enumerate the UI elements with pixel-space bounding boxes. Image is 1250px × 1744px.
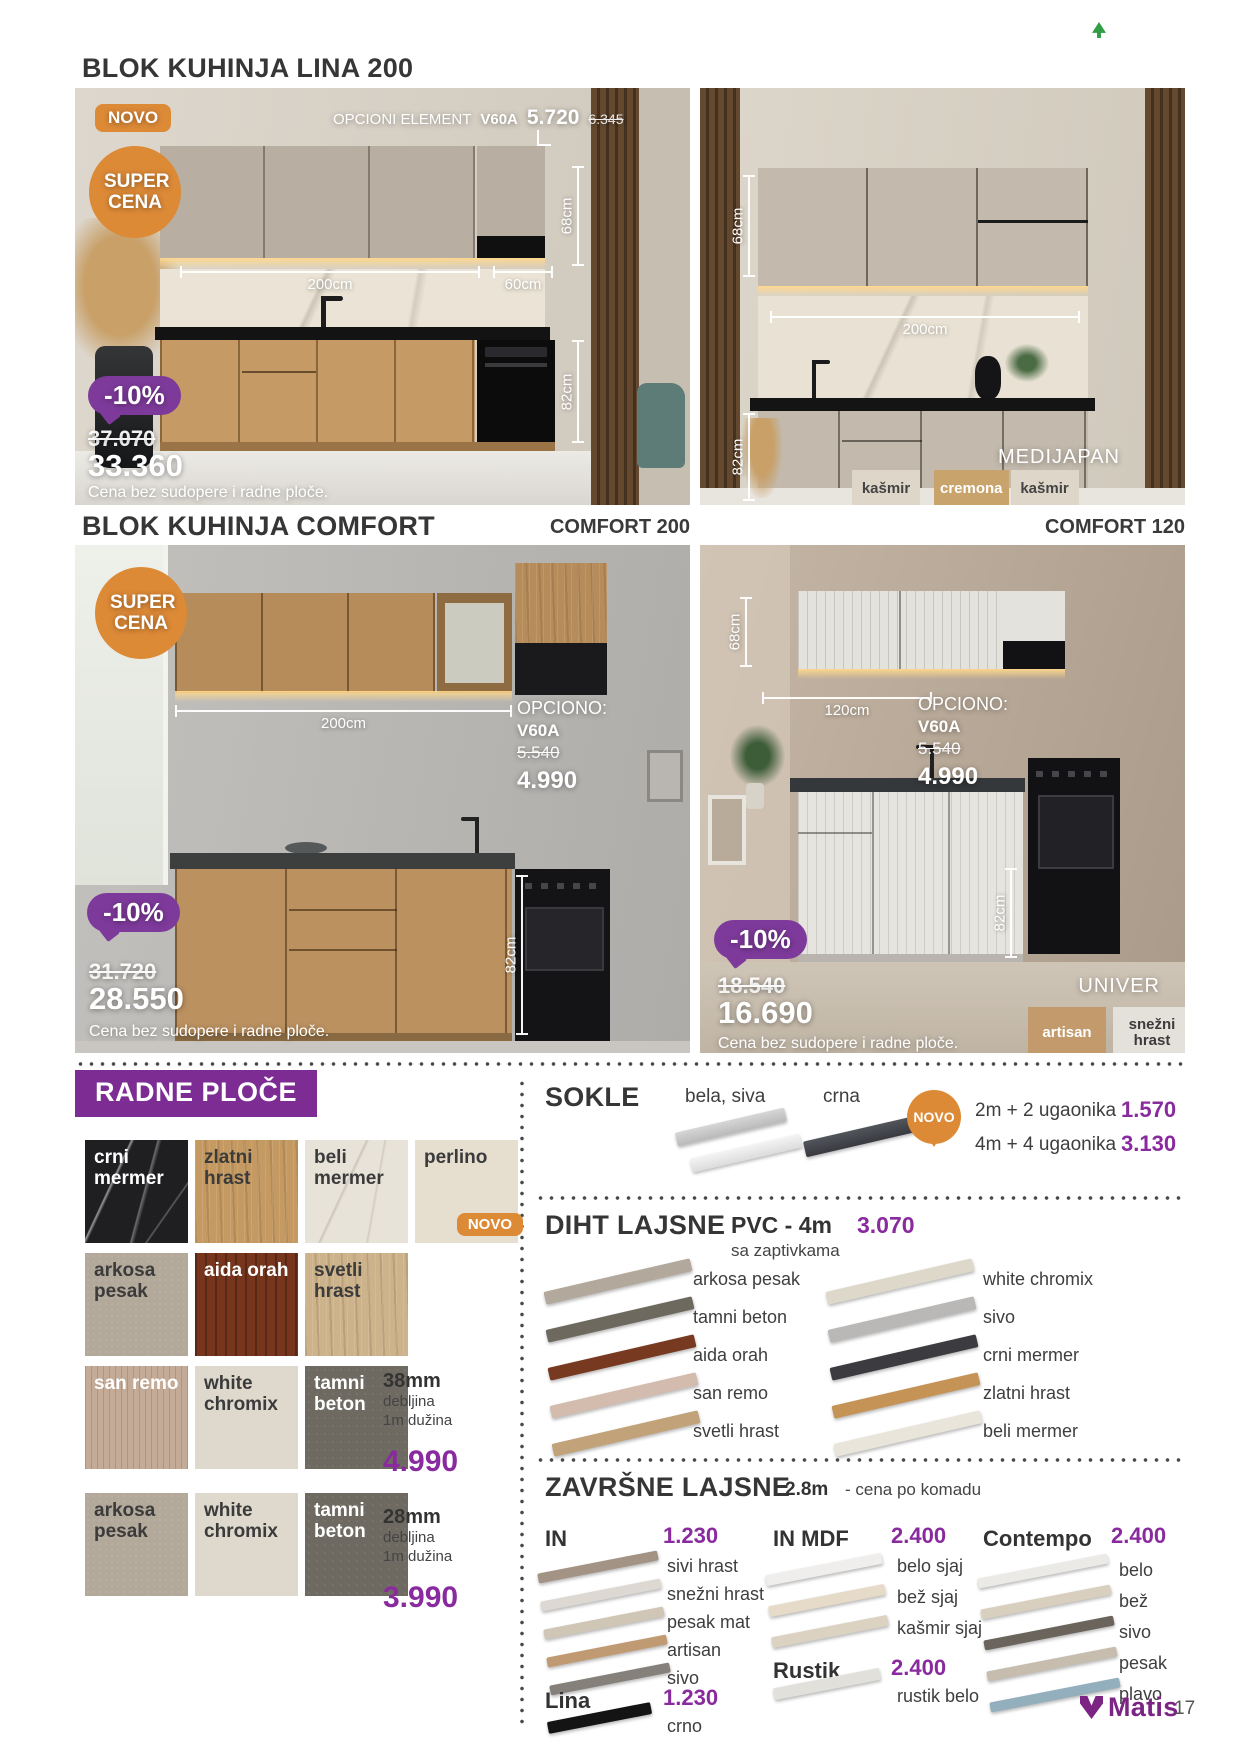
diht-strip — [827, 1296, 976, 1342]
diht-strip — [829, 1334, 978, 1380]
finish-label: sivi hrast — [667, 1556, 738, 1577]
upper-cabinets — [160, 146, 475, 258]
dim-68cm: 68cm — [745, 597, 747, 667]
section-title-lina: BLOK KUHINJA LINA 200 — [82, 53, 413, 84]
finish-group-price: 2.400 — [891, 1655, 946, 1681]
opciono-price: 4.990 — [918, 761, 1008, 792]
thickness-detail: 1m dužina — [383, 1548, 458, 1567]
sokle-variant-dark: crna — [823, 1086, 860, 1108]
kitchen-photo-medijapan: 68cm 200cm 82cm MEDIJAPAN kašmircremonak… — [700, 88, 1185, 505]
faucet-spout — [812, 360, 830, 364]
stove-knobs — [525, 883, 600, 889]
finish-group-price: 2.400 — [1111, 1523, 1166, 1549]
super-cena-badge: SUPER CENA — [89, 146, 181, 238]
finish-strip — [980, 1584, 1111, 1619]
price-note: Cena bez sudopere i radne ploče. — [89, 1023, 329, 1041]
wall-art — [647, 750, 683, 802]
separator — [75, 1062, 1185, 1066]
radne-ploce-section: RADNE PLOČE crni mermerzlatni hrastbeli … — [75, 1070, 520, 1730]
sokle-variant-light: bela, siva — [685, 1086, 765, 1108]
upper-cabinet-right — [477, 146, 545, 236]
finish-group-price: 2.400 — [891, 1523, 946, 1549]
sokle-option-price: 1.570 — [1121, 1097, 1176, 1123]
thickness-28-info: 28mm debljina 1m dužina 3.990 — [383, 1506, 458, 1615]
diht-label: aida orah — [693, 1345, 768, 1366]
catalog-page: BLOK KUHINJA LINA 200 NOVO SUPER CENA OP… — [0, 0, 1250, 1744]
opciono-code: V60A — [918, 716, 1008, 738]
color-swatch: kašmir — [1011, 470, 1079, 505]
swatch-label: san remo — [94, 1374, 178, 1395]
dim-68cm: 68cm — [577, 166, 579, 266]
dim-68cm: 68cm — [748, 175, 750, 277]
thickness-price: 4.990 — [383, 1445, 458, 1479]
swatch-label: beli mermer — [314, 1148, 408, 1189]
plant — [730, 725, 785, 787]
finish-label: bež — [1119, 1591, 1148, 1612]
material-swatch: san remo — [85, 1366, 188, 1469]
diht-label: arkosa pesak — [693, 1269, 800, 1290]
drawer-line — [798, 832, 872, 834]
floor — [75, 1041, 690, 1053]
slat-panel-right — [1145, 88, 1185, 505]
finish-strip — [771, 1615, 889, 1648]
opciono-price: 4.990 — [517, 765, 607, 796]
diht-strip — [551, 1410, 700, 1456]
diht-strip — [825, 1258, 974, 1304]
drawer-line — [242, 371, 316, 373]
thickness-detail: debljina — [383, 1529, 458, 1548]
opciono-code: V60A — [517, 720, 607, 742]
finish-strip — [540, 1578, 662, 1611]
price: 16.690 — [718, 997, 813, 1028]
opciono-element: OPCIONO: V60A 5.540 4.990 — [918, 693, 1008, 792]
plant-vase — [746, 783, 764, 809]
section-title-comfort: BLOK KUHINJA COMFORT — [82, 511, 435, 542]
dim-120cm: 120cm — [762, 697, 932, 699]
lina-right-chips: kašmircremonakašmir — [852, 470, 1079, 505]
swatch-label: arkosa pesak — [94, 1501, 188, 1542]
thickness-price: 3.990 — [383, 1581, 458, 1615]
faucet — [812, 360, 816, 398]
material-swatch: zlatni hrast — [195, 1140, 298, 1243]
drawer-line — [289, 949, 397, 951]
finish-strip — [983, 1615, 1114, 1650]
finish-strip — [768, 1584, 886, 1617]
kitchen-photo-lina-200: NOVO SUPER CENA OPCIONI ELEMENT V60A 5.7… — [75, 88, 690, 505]
sokle-section: SOKLE bela, siva crna NOVO 2m + 2 ugaoni… — [535, 1078, 1185, 1193]
opcioni-old-price: 6.345 — [588, 111, 623, 127]
page-number: 17 — [1174, 1698, 1195, 1720]
label-comfort-200: COMFORT 200 — [480, 516, 690, 539]
diht-section: DIHT LAJSNE PVC - 4m 3.070 sa zaptivkama… — [535, 1205, 1185, 1455]
label-comfort-120: COMFORT 120 — [975, 516, 1185, 539]
c120-chips: artisansnežni hrast — [1028, 1007, 1185, 1053]
discount-badge: -10% — [87, 893, 180, 932]
diht-label: svetli hrast — [693, 1421, 779, 1442]
diht-canvas: arkosa pesaktamni betonaida orahsan remo… — [535, 1205, 1185, 1455]
drawer-line — [842, 440, 922, 442]
swatch-label: svetli hrast — [314, 1261, 408, 1302]
separator — [535, 1458, 1185, 1462]
diht-label: tamni beton — [693, 1307, 787, 1328]
swatch-label: arkosa pesak — [94, 1261, 188, 1302]
plinth — [798, 954, 1023, 962]
diht-label: beli mermer — [983, 1421, 1078, 1442]
swatch-label: white chromix — [204, 1501, 298, 1542]
upper-cabinets — [758, 168, 1088, 286]
finish-strip — [546, 1634, 668, 1667]
upper-cabinet-right — [1003, 591, 1065, 641]
material-swatch: beli mermer — [305, 1140, 408, 1243]
finish-label: crno — [667, 1716, 702, 1737]
under-cabinet-light — [160, 258, 545, 269]
diht-strip — [543, 1258, 692, 1304]
opcioni-price: 5.720 — [527, 106, 580, 130]
eco-icon — [1092, 22, 1106, 38]
dim-200cm: 200cm — [770, 316, 1080, 318]
faucet-spout — [321, 296, 343, 301]
finish-label: kašmir sjaj — [897, 1618, 982, 1639]
material-swatch: white chromix — [195, 1493, 298, 1596]
dim-82cm: 82cm — [521, 875, 523, 1035]
opciono-element: OPCIONO: V60A 5.540 4.990 — [517, 697, 607, 796]
sokle-option-label: 4m + 4 ugaonika — [975, 1134, 1116, 1156]
price: 28.550 — [89, 983, 184, 1014]
diht-label: zlatni hrast — [983, 1383, 1070, 1404]
plant — [1005, 344, 1049, 382]
dim-82cm: 82cm — [1010, 868, 1012, 958]
thickness-detail: debljina — [383, 1393, 458, 1412]
finish-label: snežni hrast — [667, 1584, 764, 1605]
matis-logo-text: Matis — [1108, 1692, 1179, 1723]
novo-pin-badge: NOVO — [907, 1090, 961, 1144]
opciono-old-price: 5.540 — [517, 742, 607, 764]
countertop — [170, 853, 515, 869]
finish-strip — [537, 1550, 659, 1583]
opcioni-code: V60A — [480, 111, 518, 128]
super-cena-badge: SUPER CENA — [95, 567, 187, 659]
thickness-38-info: 38mm debljina 1m dužina 4.990 — [383, 1370, 458, 1479]
sokle-title: SOKLE — [545, 1082, 640, 1113]
material-swatch: arkosa pesak — [85, 1493, 188, 1596]
countertop — [155, 327, 550, 340]
dim-60cm: 60cm — [493, 271, 553, 273]
range-hood — [477, 236, 545, 258]
oven-window — [525, 907, 604, 971]
faucet-spout — [461, 817, 479, 821]
pointer-line — [537, 130, 551, 146]
swatch-label: aida orah — [204, 1261, 288, 1282]
finish-label: artisan — [667, 1640, 721, 1661]
faucet — [475, 817, 479, 853]
price-note: Cena bez sudopere i radne ploče. — [88, 484, 328, 502]
diht-strip — [831, 1372, 980, 1418]
material-swatch: aida orah — [195, 1253, 298, 1356]
swatch-label: perlino — [424, 1148, 487, 1169]
novo-badge: NOVO — [95, 104, 171, 132]
material-swatch: crni mermer — [85, 1140, 188, 1243]
diht-strip — [549, 1372, 698, 1418]
under-cabinet-light — [798, 669, 1065, 679]
model-name: MEDIJAPAN — [955, 446, 1120, 469]
under-cabinet-light — [758, 286, 1088, 296]
thickness-detail: 1m dužina — [383, 1412, 458, 1431]
finish-strip — [543, 1606, 665, 1639]
color-swatch: snežni hrast — [1113, 1007, 1185, 1053]
sokle-option-label: 2m + 2 ugaonika — [975, 1100, 1116, 1122]
material-swatch: svetli hrast — [305, 1253, 408, 1356]
finish-strip — [977, 1553, 1108, 1588]
sokle-option-price: 3.130 — [1121, 1131, 1176, 1157]
separator — [535, 1196, 1185, 1200]
matis-logo: Matis — [1080, 1692, 1179, 1723]
lower-cabinets — [798, 792, 1023, 954]
diht-label: sivo — [983, 1307, 1015, 1328]
plinth — [160, 442, 555, 451]
diht-label: crni mermer — [983, 1345, 1079, 1366]
upper-cabinets — [175, 593, 435, 693]
oven-display — [485, 347, 547, 357]
opciono-label: OPCIONO: — [517, 697, 607, 720]
hood-cabinet — [515, 563, 607, 643]
radne-ploce-title: RADNE PLOČE — [75, 1070, 317, 1117]
dim-82cm: 82cm — [577, 340, 579, 443]
swatch-row: crni mermerzlatni hrastbeli mermerperlin… — [85, 1140, 518, 1243]
stove-knobs — [1036, 771, 1112, 777]
finish-label: pesak — [1119, 1653, 1167, 1674]
finish-strip — [986, 1646, 1117, 1681]
dim-200cm: 200cm — [180, 271, 480, 273]
finish-group-price: 1.230 — [663, 1523, 718, 1549]
material-swatch: white chromix — [195, 1366, 298, 1469]
lower-cabinets — [175, 869, 512, 1033]
finish-group-name: Lina — [545, 1688, 590, 1714]
under-cabinet-light — [175, 691, 512, 702]
color-swatch: cremona — [934, 470, 1009, 505]
color-swatch: artisan — [1028, 1007, 1106, 1053]
finish-label: bež sjaj — [897, 1587, 958, 1608]
model-name: UNIVER — [1050, 975, 1160, 998]
glass-pane — [445, 603, 504, 683]
diht-label: white chromix — [983, 1269, 1093, 1290]
cabinet-groove — [978, 220, 1088, 223]
swatch-label: crni mermer — [94, 1148, 188, 1189]
dim-82cm: 82cm — [748, 413, 750, 501]
finish-group-price: 1.230 — [663, 1685, 718, 1711]
diht-strip — [833, 1410, 982, 1456]
thickness-size: 28mm — [383, 1506, 458, 1529]
finish-label: belo — [1119, 1560, 1153, 1581]
novo-badge: NOVO — [457, 1213, 523, 1236]
oven-window — [1038, 795, 1114, 869]
range-hood — [515, 643, 607, 695]
finish-label: belo sjaj — [897, 1556, 963, 1577]
material-swatch: arkosa pesak — [85, 1253, 188, 1356]
material-swatch: perlinoNOVO — [415, 1140, 518, 1243]
kitchen-photo-comfort-120: 68cm 120cm OPCIONO: V60A 5.540 4.990 82c… — [700, 545, 1185, 1053]
finish-group-name: IN MDF — [773, 1526, 849, 1552]
swatch-label: white chromix — [204, 1374, 298, 1415]
kitchen-photo-comfort-200: SUPER CENA 200cm OPCIONO: V60A 5.540 4.9… — [75, 545, 690, 1053]
diht-strip — [547, 1334, 696, 1380]
price-note: Cena bez sudopere i radne ploče. — [718, 1035, 958, 1053]
lower-cabinets — [160, 340, 475, 442]
oven-handle — [485, 363, 547, 367]
thickness-size: 38mm — [383, 1370, 458, 1393]
drawer-line — [289, 909, 397, 911]
opcioni-element: OPCIONI ELEMENT V60A 5.720 6.345 — [333, 106, 624, 130]
finish-group-name: Contempo — [983, 1526, 1092, 1552]
wall-art — [708, 795, 746, 865]
upper-cabinets — [798, 591, 1003, 669]
finish-label: pesak mat — [667, 1612, 750, 1633]
range-hood — [1003, 641, 1065, 669]
finish-strip — [765, 1553, 883, 1586]
finish-label: sivo — [1119, 1622, 1151, 1643]
dim-200cm: 200cm — [175, 710, 512, 712]
countertop — [750, 398, 1095, 411]
swatch-row: arkosa pesakaida orahsvetli hrast — [85, 1253, 518, 1356]
finish-group-name: IN — [545, 1526, 567, 1552]
separator-vertical — [520, 1078, 524, 1730]
color-swatch: kašmir — [852, 470, 920, 505]
finish-label: rustik belo — [897, 1686, 979, 1707]
swatch-label: zlatni hrast — [204, 1148, 298, 1189]
price: 33.360 — [88, 450, 183, 481]
discount-badge: -10% — [88, 376, 181, 415]
diht-label: san remo — [693, 1383, 768, 1404]
discount-badge: -10% — [714, 920, 807, 959]
vase — [975, 356, 1001, 400]
chair — [637, 383, 685, 468]
diht-strip — [545, 1296, 694, 1342]
opciono-old-price: 5.540 — [918, 738, 1008, 760]
matis-logo-mark — [1080, 1696, 1103, 1719]
opcioni-label: OPCIONI ELEMENT — [333, 111, 471, 128]
slat-panel — [591, 88, 639, 505]
opciono-label: OPCIONO: — [918, 693, 1008, 716]
